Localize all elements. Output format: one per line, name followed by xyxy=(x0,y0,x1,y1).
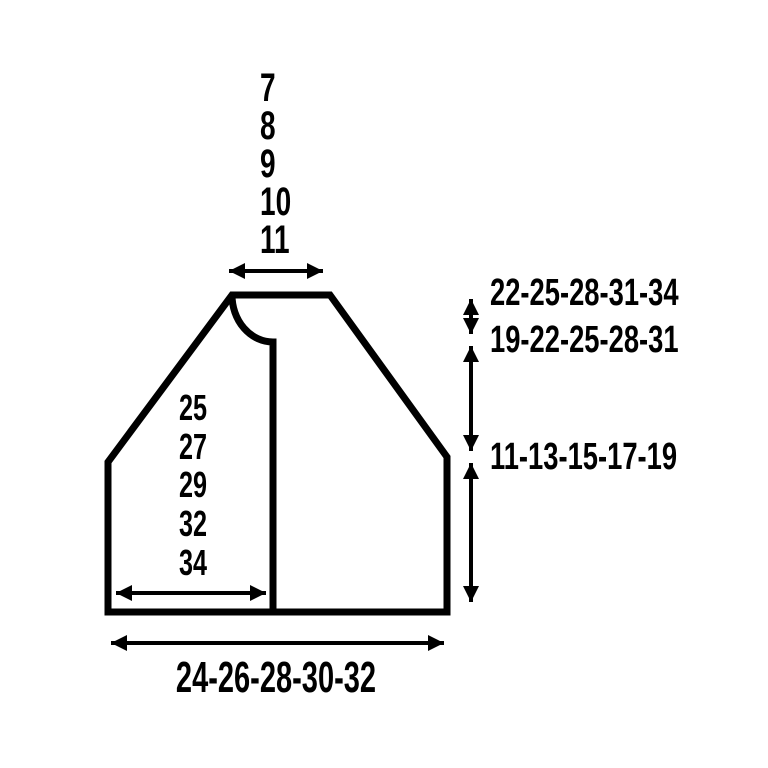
garment-outline xyxy=(108,295,447,612)
inner-width-size-label: 32 xyxy=(179,504,207,545)
right-measurement-label: 19-22-25-28-31 xyxy=(490,319,679,361)
inner-width-size-label: 25 xyxy=(179,388,207,429)
inner-width-size-label: 29 xyxy=(179,465,207,506)
right-measurement-label: 22-25-28-31-34 xyxy=(490,272,679,314)
right-measurement-label: 11-13-15-17-19 xyxy=(490,436,677,478)
top-width-size-label: 11 xyxy=(260,218,290,262)
schematic-canvas: 7 8 9 10 11 25 27 29 32 34 22-25-28-31-3… xyxy=(0,0,768,768)
inner-width-size-label: 27 xyxy=(179,427,207,468)
garment-schematic: 7 8 9 10 11 25 27 29 32 34 22-25-28-31-3… xyxy=(0,0,768,768)
inner-width-size-label: 34 xyxy=(179,543,208,584)
bottom-width-measurement-label: 24-26-28-30-32 xyxy=(176,652,376,702)
